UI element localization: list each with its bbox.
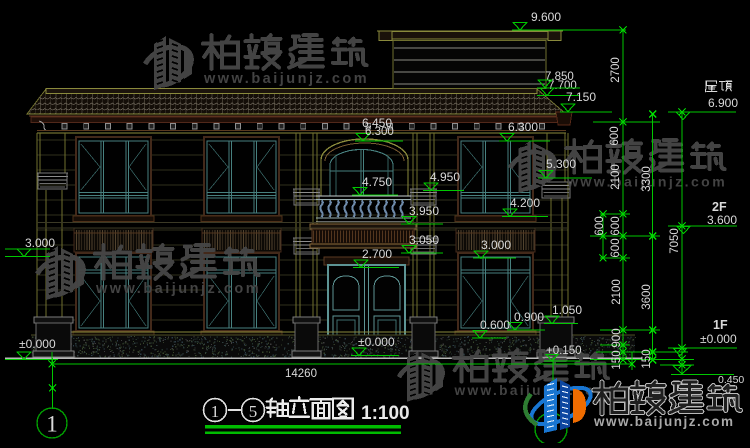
svg-text:1.050: 1.050 xyxy=(552,303,582,317)
svg-text:0.600: 0.600 xyxy=(480,318,510,332)
svg-text:600: 600 xyxy=(609,126,621,145)
svg-text:3300: 3300 xyxy=(641,166,653,192)
svg-text:6.900: 6.900 xyxy=(708,96,738,110)
svg-text:±0.000: ±0.000 xyxy=(19,337,56,351)
svg-text:2100: 2100 xyxy=(611,279,623,305)
svg-text:2100: 2100 xyxy=(610,164,622,190)
svg-text:3.950: 3.950 xyxy=(409,204,439,218)
svg-text:0.900: 0.900 xyxy=(514,310,544,324)
svg-text:1: 1 xyxy=(46,412,58,437)
svg-text:3.600: 3.600 xyxy=(707,213,737,227)
svg-text:4.750: 4.750 xyxy=(362,175,392,189)
svg-text:600: 600 xyxy=(594,216,606,235)
svg-text:2F: 2F xyxy=(712,200,727,214)
svg-text:1:100: 1:100 xyxy=(361,403,410,424)
svg-text:600: 600 xyxy=(610,216,622,235)
svg-text:+0.150: +0.150 xyxy=(546,345,582,357)
svg-text:1F: 1F xyxy=(713,318,728,332)
svg-text:±0.000: ±0.000 xyxy=(700,332,737,346)
svg-text:7.150: 7.150 xyxy=(566,90,596,104)
svg-text:±0.000: ±0.000 xyxy=(358,335,395,349)
svg-text:6.300: 6.300 xyxy=(508,120,538,134)
svg-text:14260: 14260 xyxy=(285,368,317,380)
svg-text:7050: 7050 xyxy=(669,228,681,254)
svg-text:3.050: 3.050 xyxy=(409,233,439,247)
svg-text:4.950: 4.950 xyxy=(430,170,460,184)
svg-text:0.450: 0.450 xyxy=(718,374,744,386)
svg-text:5.300: 5.300 xyxy=(546,157,576,171)
svg-text:5: 5 xyxy=(249,402,258,421)
svg-text:2.700: 2.700 xyxy=(362,247,392,261)
svg-text:6.300: 6.300 xyxy=(365,126,394,138)
svg-text:150: 150 xyxy=(611,350,623,369)
svg-text:600: 600 xyxy=(610,238,622,257)
svg-text:1: 1 xyxy=(211,402,220,421)
svg-text:3600: 3600 xyxy=(641,284,653,310)
svg-text:3.000: 3.000 xyxy=(481,238,511,252)
svg-text:4.200: 4.200 xyxy=(510,196,540,210)
svg-text:150: 150 xyxy=(641,349,653,368)
svg-text:3.000: 3.000 xyxy=(25,236,55,250)
svg-text:900: 900 xyxy=(611,328,623,347)
svg-text:www.baijunjz.com: www.baijunjz.com xyxy=(593,414,735,429)
svg-text:2700: 2700 xyxy=(610,57,622,83)
svg-text:9.600: 9.600 xyxy=(531,10,561,24)
